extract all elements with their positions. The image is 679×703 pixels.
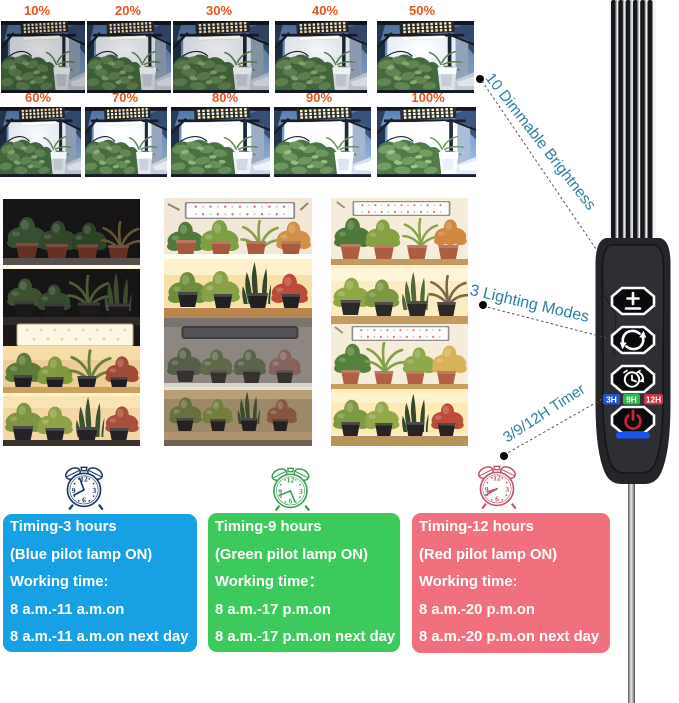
- svg-text:12H: 12H: [646, 394, 661, 404]
- svg-text:9H: 9H: [626, 394, 637, 404]
- svg-text:3H: 3H: [606, 394, 617, 404]
